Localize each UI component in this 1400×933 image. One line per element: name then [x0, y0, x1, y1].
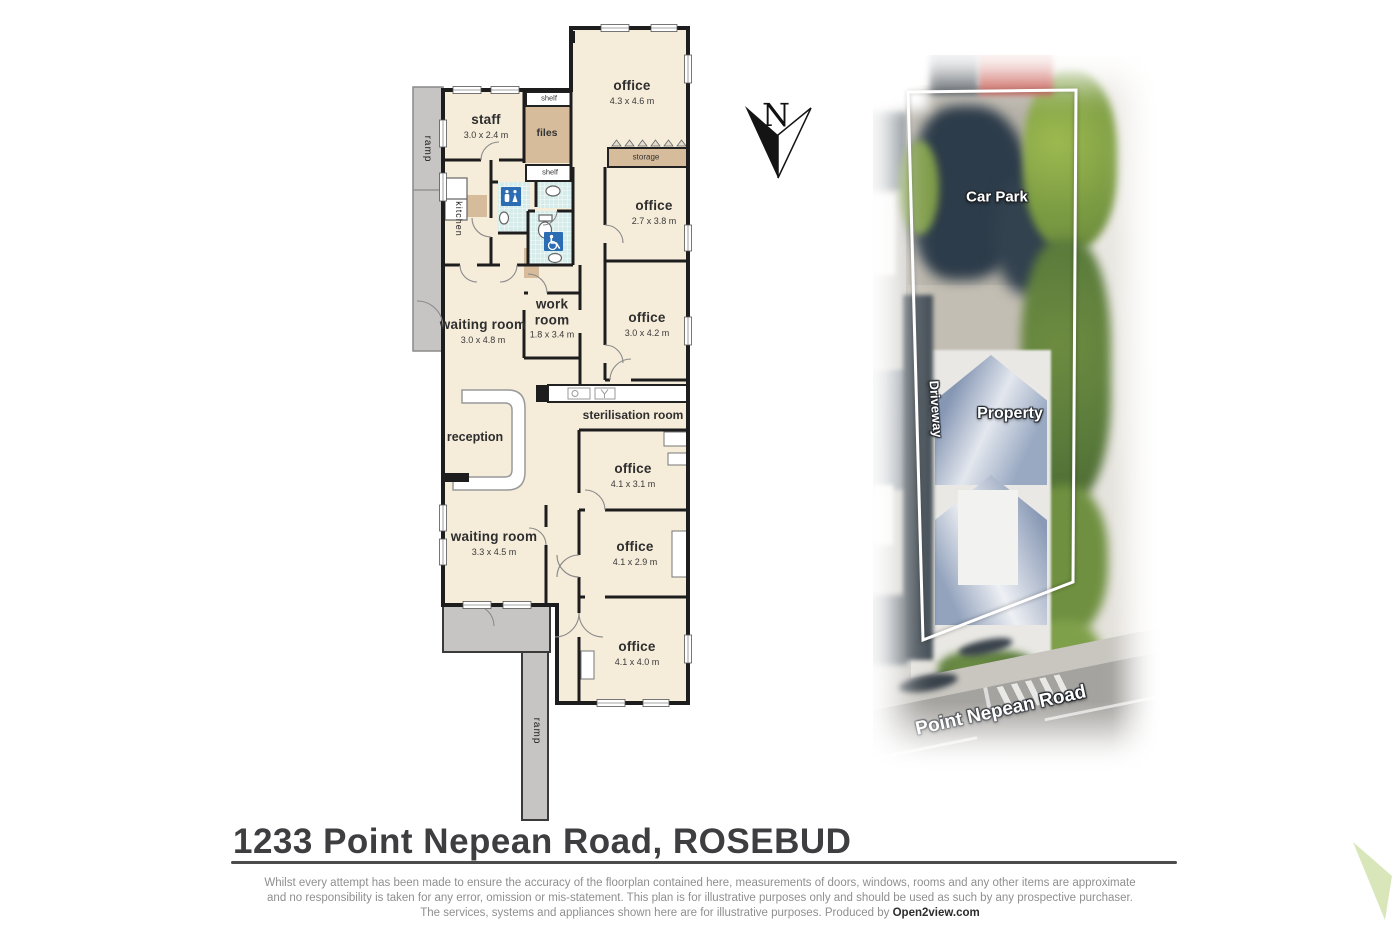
sterilisation-counter: [536, 385, 688, 402]
disclaimer-line-2: and no responsibility is taken for any e…: [105, 891, 1295, 906]
aerial-photo: Car Park Driveway Property Point Nepean …: [873, 55, 1165, 773]
room-label-office-2: office 2.7 x 3.8 m: [632, 198, 677, 226]
cupboard: [672, 531, 688, 577]
basin-2: [549, 254, 562, 263]
floorplan-page: office 4.3 x 4.6 m staff 3.0 x 2.4 m off…: [0, 0, 1400, 933]
label-reception: reception: [447, 430, 503, 444]
room-label-office-top: office 4.3 x 4.6 m: [610, 78, 655, 106]
room-label-staff: staff 3.0 x 2.4 m: [464, 112, 509, 140]
room-label-waiting-room-2: waiting room 3.3 x 4.5 m: [444, 529, 544, 557]
page-title: 1233 Point Nepean Road, ROSEBUD: [233, 822, 851, 862]
disclaimer-line-1: Whilst every attempt has been made to en…: [105, 876, 1295, 891]
room-label-office-5: office 4.1 x 2.9 m: [613, 539, 658, 567]
label-files: files: [536, 127, 557, 139]
wheelchair-icon: [544, 232, 563, 251]
room-label-waiting-room-1: waiting room 3.0 x 4.8 m: [436, 317, 531, 345]
title-divider: [231, 861, 1177, 864]
label-storage: storage: [633, 152, 660, 161]
label-ramp-left: ramp: [421, 136, 433, 163]
aerial-label-property: Property: [977, 405, 1043, 423]
corner-triangle-decoration: [1345, 836, 1400, 924]
porch-area: [443, 605, 550, 652]
label-ramp-bottom: ramp: [530, 718, 542, 745]
toilet-2: [500, 212, 509, 224]
label-kitchen: kitchen: [454, 201, 464, 237]
label-shelf-top: shelf: [541, 95, 557, 104]
restroom-icon: [501, 187, 521, 206]
room-label-work-room: work room 1.8 x 3.4 m: [518, 296, 586, 339]
room-label-office-3: office 3.0 x 4.2 m: [625, 310, 670, 338]
label-shelf-bottom: shelf: [542, 169, 558, 178]
north-compass: N: [736, 86, 820, 194]
label-sterilisation-room: sterilisation room: [583, 409, 684, 423]
disclaimer-text: Whilst every attempt has been made to en…: [105, 876, 1295, 921]
aerial-label-car-park: Car Park: [966, 189, 1028, 206]
brand-name: Open2view.com: [893, 907, 980, 919]
room-label-office-4: office 4.1 x 3.1 m: [611, 461, 656, 489]
disclaimer-line-3: The services, systems and appliances sho…: [105, 906, 1295, 921]
basin: [546, 186, 560, 196]
toilet-tank: [539, 215, 552, 221]
room-label-office-6: office 4.1 x 4.0 m: [615, 639, 660, 667]
